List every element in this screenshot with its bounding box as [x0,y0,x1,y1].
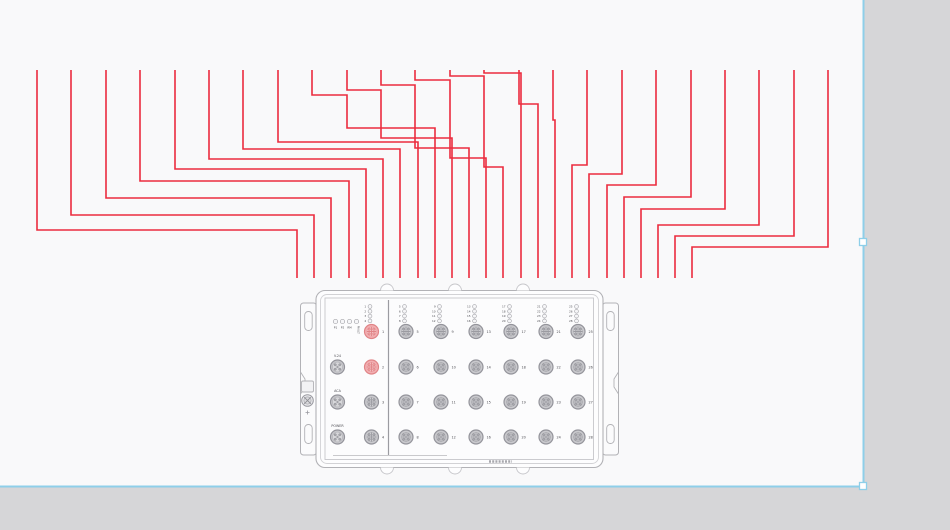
port-led-10 [438,309,442,313]
micro-label: 26 [569,309,573,313]
port-number: 15 [487,400,491,404]
selection-handle[interactable] [860,483,867,490]
micro-label: 7 [399,314,401,318]
status-led-fault [354,319,358,323]
micro-label: 8 [399,319,401,323]
micro-label: 4 [364,319,366,323]
selection-handle[interactable] [860,239,867,246]
port-led-19 [508,314,512,318]
port-number: 16 [487,435,491,439]
port-led-21 [543,305,547,309]
micro-label: 21 [537,305,541,309]
port-number: 28 [589,435,593,439]
status-led-p2 [340,319,344,323]
port-led-25 [575,305,579,309]
port-number: 24 [557,435,561,439]
micro-label: 10 [432,309,436,313]
port-led-7 [403,314,407,318]
micro-label: 20 [502,319,506,323]
port-number: 21 [557,330,561,334]
connector-label: ACA [334,389,341,393]
mount-bracket-right [603,303,619,455]
port-number: 9 [452,330,454,334]
micro-label: 24 [537,319,541,323]
micro-label: 5 [399,305,401,309]
port-led-23 [543,314,547,318]
port-number: 27 [589,400,593,404]
port-led-1 [368,305,372,309]
port-number: 2 [382,365,384,369]
port-led-3 [368,314,372,318]
micro-label: 11 [432,314,436,318]
micro-label: 15 [467,314,471,318]
port-led-9 [438,305,442,309]
port-number: 11 [452,400,456,404]
port-number: 18 [522,365,526,369]
port-led-11 [438,314,442,318]
micro-label: 6 [399,309,401,313]
port-led-2 [368,309,372,313]
port-led-12 [438,319,442,323]
port-number: 6 [417,365,419,369]
port-number: 19 [522,400,526,404]
port-led-13 [473,305,477,309]
port-led-4 [368,319,372,323]
micro-label: 1 [364,305,366,309]
port-number: 4 [382,435,384,439]
micro-label: 22 [537,309,541,313]
micro-label: 13 [467,305,471,309]
port-led-14 [473,309,477,313]
port-number: 26 [589,365,593,369]
micro-label: 12 [432,319,436,323]
micro-label: RM [347,326,352,330]
micro-label: 2 [364,309,366,313]
mount-bracket-left [301,303,317,455]
micro-label: 16 [467,319,471,323]
micro-label: 18 [502,309,506,313]
micro-label: P1 [334,326,338,330]
micro-label: 17 [502,305,506,309]
port-led-22 [543,309,547,313]
port-led-5 [403,305,407,309]
port-number: 23 [557,400,561,404]
drawing-workspace: P1P2RMFAULTV.24ACAPOWER11223344556677889… [0,0,950,530]
port-led-18 [508,309,512,313]
port-number: 17 [522,330,526,334]
port-number: 22 [557,365,561,369]
micro-label: 23 [537,314,541,318]
micro-label: 25 [569,305,573,309]
device-switch[interactable]: P1P2RMFAULTV.24ACAPOWER11223344556677889… [301,284,619,474]
port-number: 5 [417,330,419,334]
port-led-8 [403,319,407,323]
port-number: 3 [382,400,384,404]
port-led-17 [508,305,512,309]
port-number: 7 [417,400,419,404]
power-connector[interactable]: POWER [331,424,345,444]
port-number: 14 [487,365,491,369]
port-led-26 [575,309,579,313]
cable-clamp [302,381,314,392]
micro-label: 27 [569,314,573,318]
port-number: 10 [452,365,456,369]
connector-label: POWER [331,424,344,428]
port-led-28 [575,319,579,323]
status-led-rm [347,319,351,323]
port-led-20 [508,319,512,323]
port-number: 12 [452,435,456,439]
port-number: 25 [589,330,593,334]
status-led-p1 [333,319,337,323]
micro-label: P2 [341,326,345,330]
port-number: 13 [487,330,491,334]
port-number: 1 [382,330,384,334]
schematic-canvas[interactable]: P1P2RMFAULTV.24ACAPOWER11223344556677889… [0,0,950,530]
port-number: 20 [522,435,526,439]
micro-label: 19 [502,314,506,318]
micro-label: FAULT [357,326,361,334]
port-led-27 [575,314,579,318]
connector-label: V.24 [334,354,341,358]
micro-label: 3 [364,314,366,318]
port-led-16 [473,319,477,323]
micro-label: 9 [434,305,436,309]
port-number: 8 [417,435,419,439]
port-led-15 [473,314,477,318]
port-led-24 [543,319,547,323]
port-led-6 [403,309,407,313]
micro-label: 28 [569,319,573,323]
micro-label: 14 [467,309,471,313]
